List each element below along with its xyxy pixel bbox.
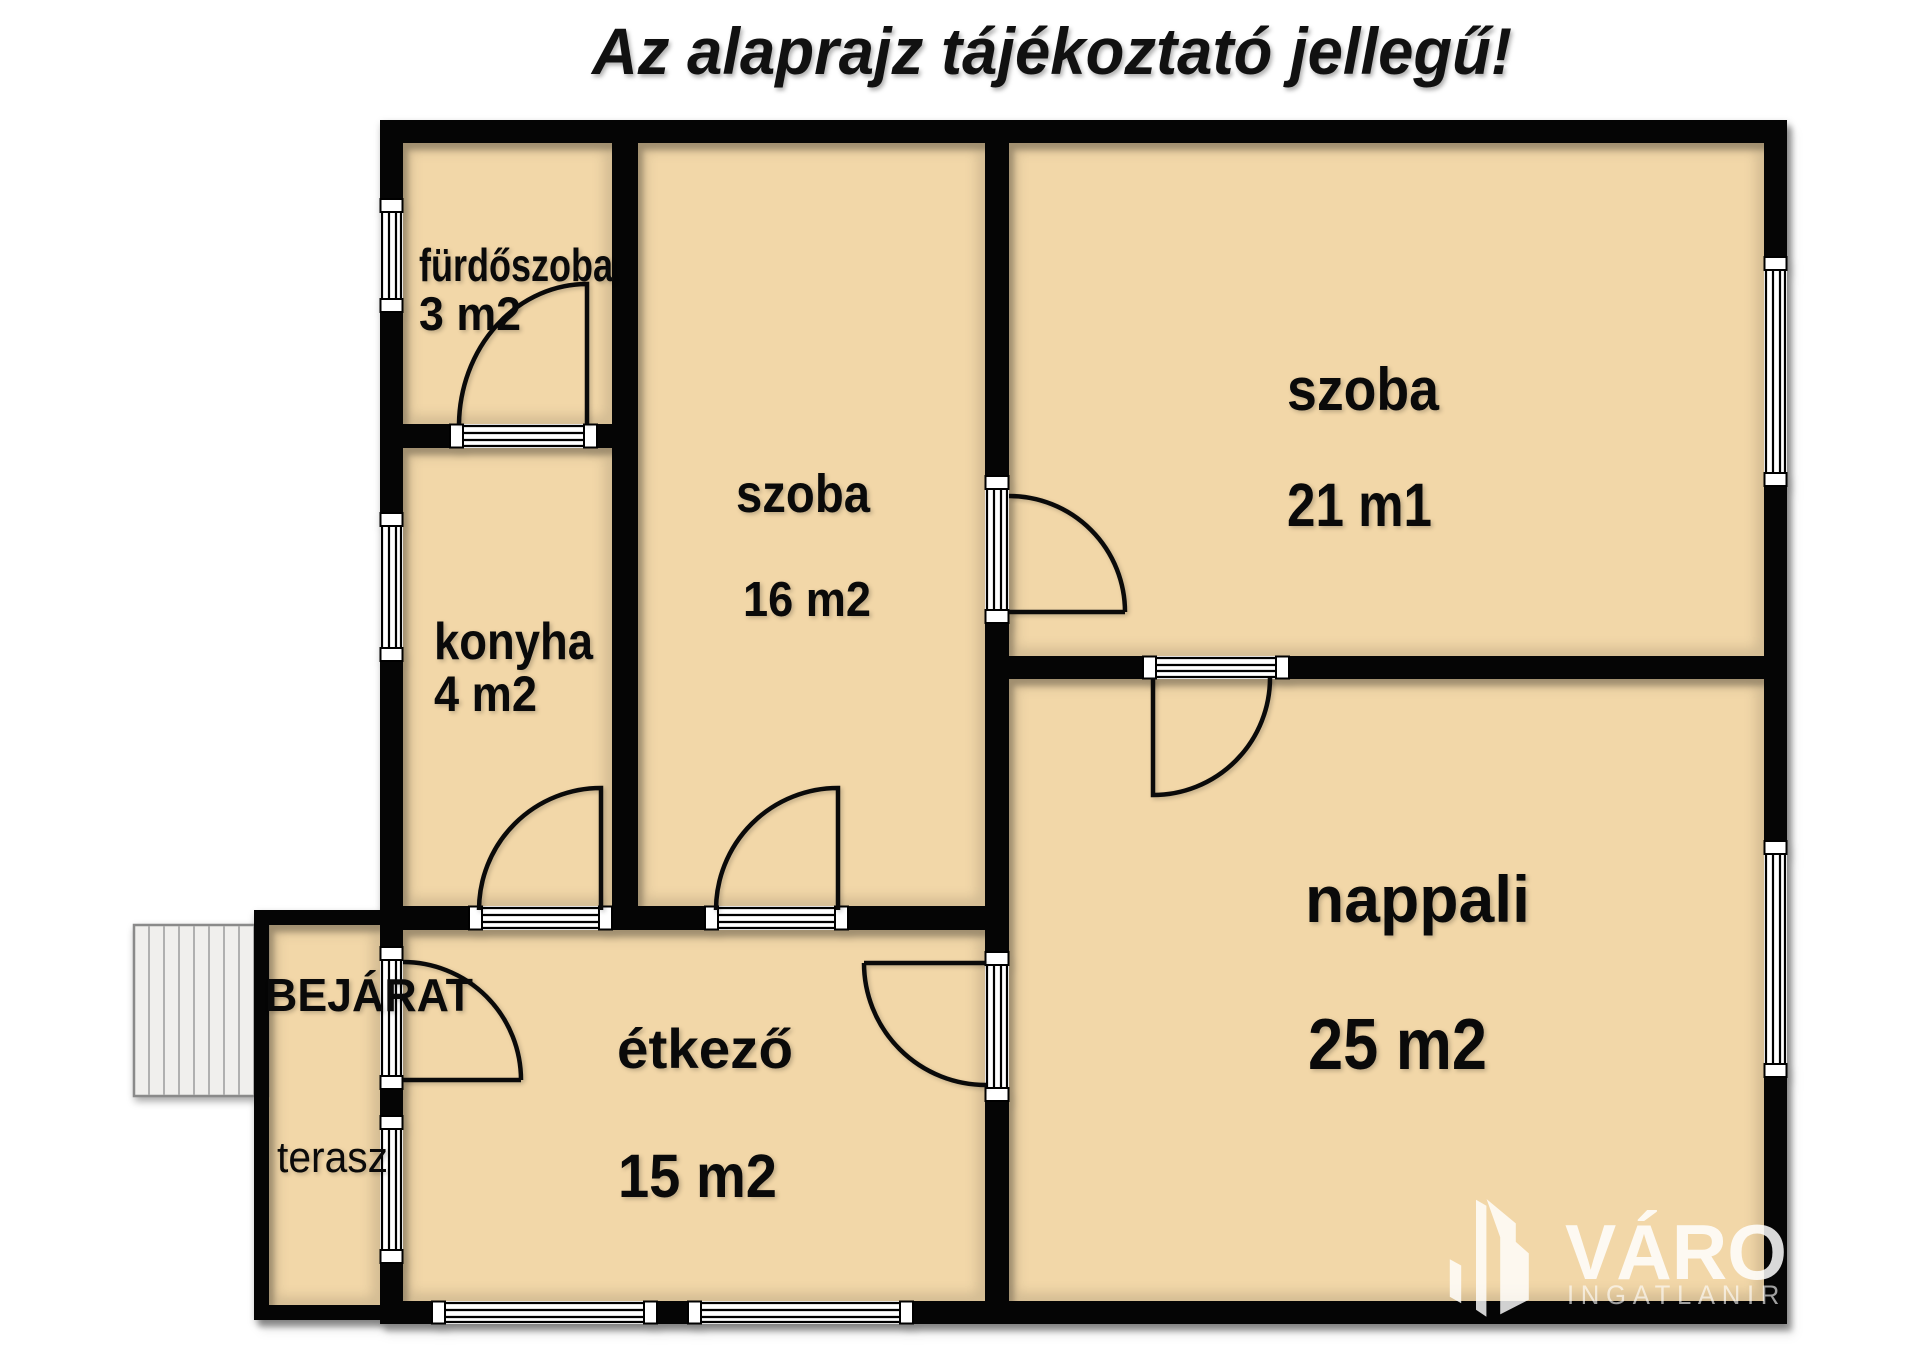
svg-text:Az alaprajz tájékoztató jelleg: Az alaprajz tájékoztató jellegű! <box>590 14 1512 88</box>
svg-text:fürdőszoba: fürdőszoba <box>419 239 613 291</box>
svg-text:terasz: terasz <box>277 1133 388 1182</box>
svg-text:21 m1: 21 m1 <box>1287 471 1432 539</box>
svg-text:INGATLANIR: INGATLANIR <box>1567 1280 1786 1310</box>
svg-text:16 m2: 16 m2 <box>743 573 871 627</box>
svg-text:4 m2: 4 m2 <box>434 666 537 722</box>
svg-text:konyha: konyha <box>434 613 594 671</box>
svg-text:nappali: nappali <box>1305 862 1530 936</box>
svg-text:étkező: étkező <box>617 1017 793 1080</box>
svg-text:BEJÁRAT: BEJÁRAT <box>265 969 473 1021</box>
svg-text:3 m2: 3 m2 <box>419 287 521 340</box>
svg-text:25 m2: 25 m2 <box>1308 1005 1487 1085</box>
svg-text:szoba: szoba <box>736 464 871 524</box>
svg-text:szoba: szoba <box>1287 356 1440 423</box>
svg-text:15 m2: 15 m2 <box>618 1142 777 1210</box>
